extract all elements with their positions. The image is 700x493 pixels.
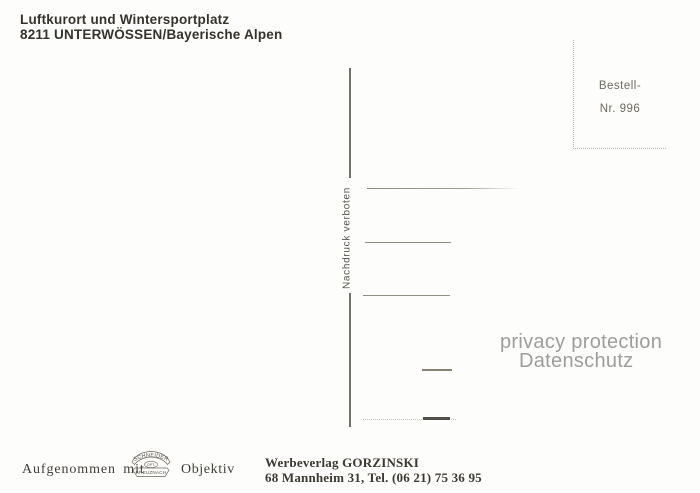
camera-credit-suffix: Objektiv: [181, 462, 235, 478]
caption-line-1: Luftkurort und Wintersportplatz: [20, 13, 282, 28]
postcard-back: Luftkurort und Wintersportplatz 8211 UNT…: [0, 0, 700, 493]
divider-line-upper: [349, 68, 351, 178]
watermark-line-2: Datenschutz: [519, 350, 633, 373]
address-line-4: [422, 369, 452, 371]
address-line-1: [367, 188, 520, 189]
divider-line-lower: [349, 293, 351, 427]
address-line-2: [365, 242, 451, 243]
publisher-name: Werbeverlag GORZINSKI: [265, 455, 482, 470]
order-number-value: Nr. 996: [574, 103, 666, 115]
camera-credit-prefix: Aufgenommen mit: [22, 462, 145, 478]
address-line-5-mark: [423, 417, 450, 420]
publisher-credit: Werbeverlag GORZINSKI 68 Mannheim 31, Te…: [265, 455, 482, 485]
publisher-address: 68 Mannheim 31, Tel. (06 21) 75 36 95: [265, 470, 482, 485]
logo-text-middle: OPT.: [147, 463, 155, 467]
logo-text-bottom: KREUZNACH: [136, 470, 166, 475]
stamp-box: Bestell- Nr. 996: [573, 40, 666, 149]
caption: Luftkurort und Wintersportplatz 8211 UNT…: [20, 13, 282, 42]
copyright-vertical-text: Nachdruck verboten: [342, 187, 353, 289]
schneider-kreuznach-logo-icon: SCHNEIDER OPT. KREUZNACH: [128, 448, 174, 480]
order-number-label: Bestell-: [574, 80, 666, 92]
caption-line-2: 8211 UNTERWÖSSEN/Bayerische Alpen: [20, 28, 282, 43]
address-line-3: [363, 295, 450, 296]
